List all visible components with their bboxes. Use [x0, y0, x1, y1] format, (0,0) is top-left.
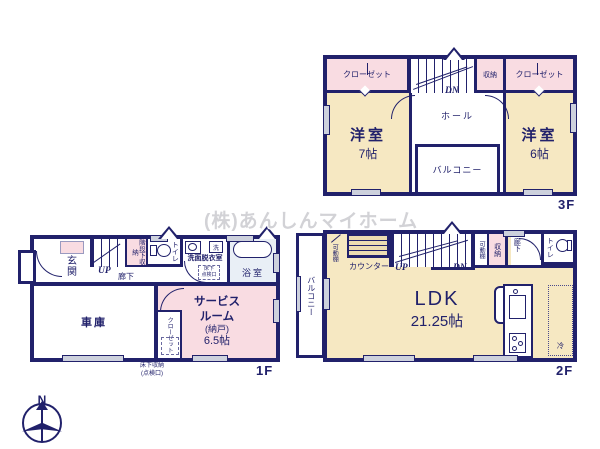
balcony-2f: バルコニー — [296, 233, 325, 358]
stairs-up-2f-label: UP — [395, 263, 408, 273]
floor-1-tag: 1F — [256, 363, 273, 378]
balcony-2f-label: バルコニー — [306, 276, 314, 316]
window — [296, 276, 301, 312]
burner-icon — [512, 346, 517, 351]
washer-box: 洗 — [209, 241, 223, 253]
shelf-tick — [331, 234, 341, 242]
entrance-door-arc — [36, 251, 62, 277]
room-west-7-name: 洋室 — [350, 124, 386, 145]
window — [273, 299, 280, 323]
window — [503, 230, 525, 237]
movable-shelf-right: 可動棚 — [475, 234, 489, 265]
stairs-arrow-2f — [441, 221, 463, 234]
window — [523, 189, 553, 196]
stairs-arrow-3f — [443, 47, 465, 60]
window — [363, 355, 415, 362]
toilet-1f-label: トイレ — [171, 241, 178, 262]
storage-3f-label: 収納 — [483, 70, 497, 80]
room-west-6-size: 6帖 — [530, 145, 549, 162]
underfloor-storage-note-l1: 床下収納 — [140, 363, 164, 371]
floor-3-plan: クローゼット 収納 クローゼット DN 洋室 7帖 ホール 洋室 6帖 バルコニ… — [323, 55, 577, 196]
faucet-icon — [513, 289, 518, 294]
burner-icon — [512, 336, 517, 341]
floor-2-plan: カウンター 可動棚 UP DN 可動棚 収納 廊下 トイレ LDK 21 — [323, 230, 577, 362]
window — [273, 253, 280, 273]
shoe-cabinet — [60, 241, 84, 254]
ldk-room: LDK 21.25帖 — [357, 284, 517, 334]
ldk-size: 21.25帖 — [411, 312, 464, 332]
toilet-1f: トイレ — [148, 239, 183, 267]
window — [226, 235, 254, 242]
window — [192, 355, 228, 362]
under-stairs-storage-label: 階段下収納 — [130, 239, 144, 265]
toilet-tank-icon — [567, 240, 572, 251]
bathtub-icon — [233, 241, 272, 258]
fridge-label: 冷 — [549, 341, 572, 351]
underfloor-storage-box — [161, 337, 179, 355]
service-room-l1: サービス — [194, 295, 240, 309]
toilet-2f-label: トイレ — [546, 237, 553, 258]
room-west-6-3f: 洋室 6帖 — [503, 93, 573, 192]
under-stairs-storage: 階段下収納 — [125, 239, 148, 267]
watermark: (株)あんしんマイホーム — [204, 206, 418, 233]
service-room-l2: ルーム — [200, 310, 234, 324]
storage-2f: 収納 — [489, 234, 508, 265]
fridge-space: 冷 — [548, 285, 573, 356]
movable-shelf-left-label: 可動棚 — [331, 244, 337, 262]
wall-segment — [475, 265, 573, 268]
stairs-up-1f-label: UP — [98, 266, 111, 276]
compass: N — [16, 393, 68, 447]
garage-label: 車庫 — [81, 314, 107, 330]
wall-segment — [431, 267, 475, 270]
closet-right-3f-label: クローゼット — [516, 69, 564, 80]
kitchen-end-panel — [494, 286, 505, 324]
hallway-1f-label: 廊下 — [118, 271, 134, 282]
storage-2f-label: 収納 — [493, 243, 500, 257]
washer-label: 洗 — [213, 243, 219, 252]
movable-shelf-right-label: 可動棚 — [478, 235, 484, 264]
burner-icon — [518, 341, 523, 346]
service-room-size: 6.5帖 — [204, 335, 230, 349]
service-room-l3: (納戸) — [205, 324, 229, 335]
ldk-name: LDK — [415, 286, 460, 312]
underfloor-storage-note: 床下収納 (点検口) — [124, 363, 180, 379]
balcony-3f: バルコニー — [415, 144, 500, 192]
floor-3-tag: 3F — [558, 197, 575, 212]
compass-needle-head — [36, 401, 48, 410]
roof-vent-mark — [158, 226, 180, 239]
room-west-7-size: 7帖 — [359, 145, 378, 162]
closet-pole-right — [537, 63, 538, 75]
storage-3f: 収納 — [477, 59, 506, 93]
counter — [347, 234, 389, 258]
toilet-tank-icon — [150, 245, 157, 256]
bathroom-label: 浴室 — [230, 266, 276, 279]
entrance-porch — [18, 250, 36, 284]
bathroom: 浴室 — [230, 239, 276, 282]
hallway-2f: 廊下 — [511, 234, 541, 265]
floor-1-plan: 玄関 UP 階段下収納 トイレ 廊下 洗面脱衣室 洗 床下 点検口 — [30, 235, 280, 362]
garage-door — [62, 355, 124, 362]
entrance-label: 玄関 — [64, 255, 75, 277]
window — [323, 105, 330, 135]
floorplan-stage: クローゼット 収納 クローゼット DN 洋室 7帖 ホール 洋室 6帖 バルコニ… — [0, 0, 600, 449]
room-west-6-name: 洋室 — [521, 124, 557, 145]
sink-bowl-icon — [188, 243, 197, 251]
toilet-2f: トイレ — [541, 234, 573, 265]
window — [323, 278, 330, 310]
window — [351, 189, 381, 196]
kitchen-counter — [503, 284, 533, 358]
kitchen-sink-icon — [509, 295, 526, 319]
balcony-3f-label: バルコニー — [433, 163, 483, 176]
window — [473, 355, 518, 362]
floor-2-tag: 2F — [556, 363, 573, 378]
window — [570, 103, 577, 133]
underfloor-storage-note-l2: (点検口) — [141, 371, 163, 379]
toilet-door-arc — [519, 238, 541, 260]
closet-pole-left — [367, 63, 368, 75]
toilet-bowl-icon — [157, 244, 171, 257]
garage: 車庫 — [34, 286, 154, 358]
